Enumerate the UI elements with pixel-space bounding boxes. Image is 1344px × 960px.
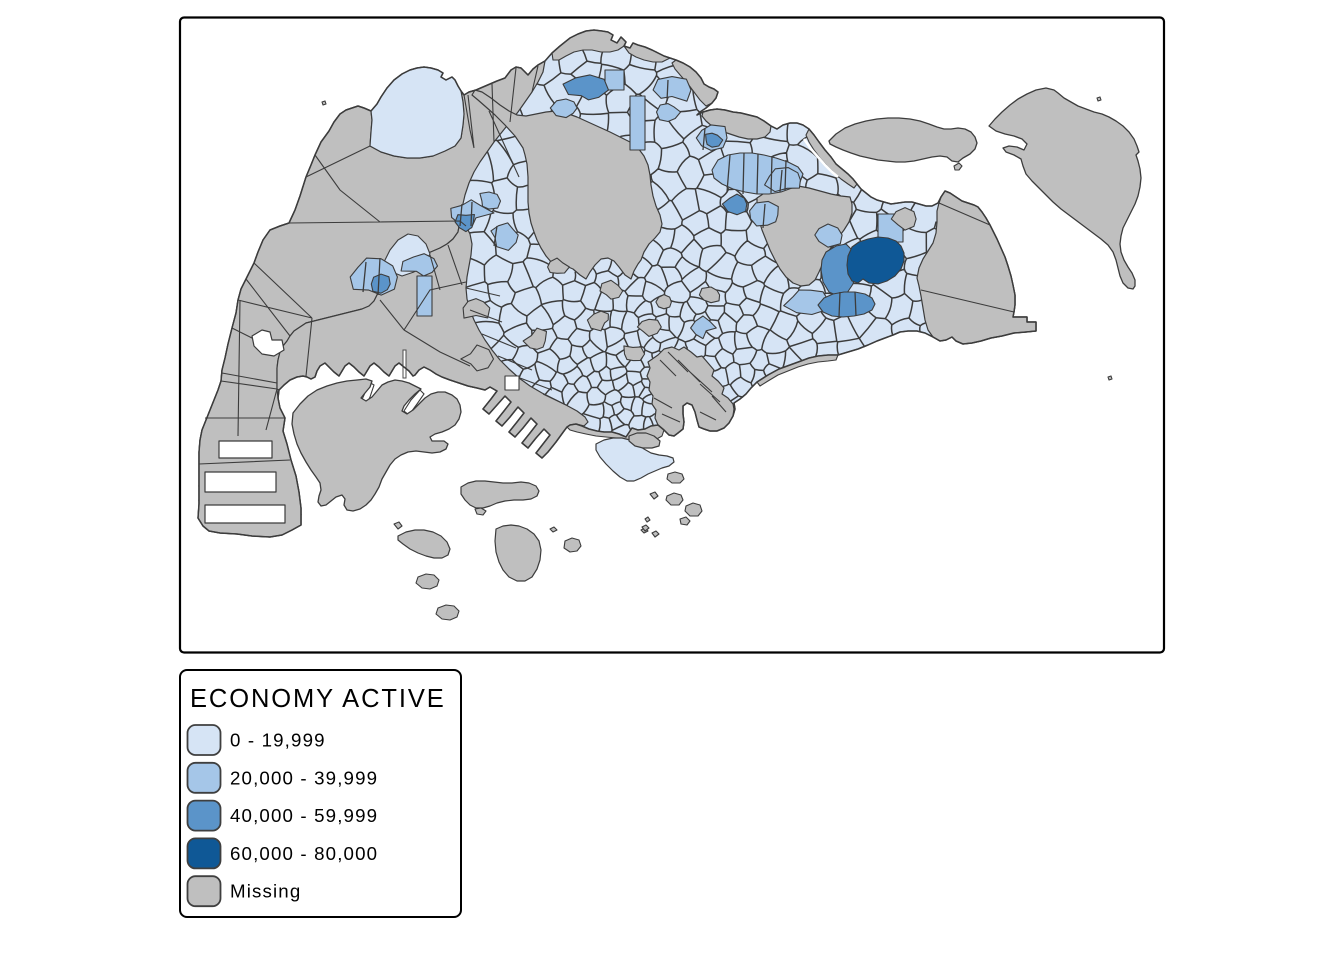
svg-text:0 - 19,999: 0 - 19,999 (230, 730, 326, 751)
svg-text:20,000 - 39,999: 20,000 - 39,999 (230, 767, 378, 788)
svg-text:60,000 - 80,000: 60,000 - 80,000 (230, 843, 378, 864)
svg-text:ECONOMY ACTIVE: ECONOMY ACTIVE (190, 685, 446, 713)
svg-text:40,000 - 59,999: 40,000 - 59,999 (230, 805, 378, 826)
svg-text:Missing: Missing (230, 881, 301, 902)
